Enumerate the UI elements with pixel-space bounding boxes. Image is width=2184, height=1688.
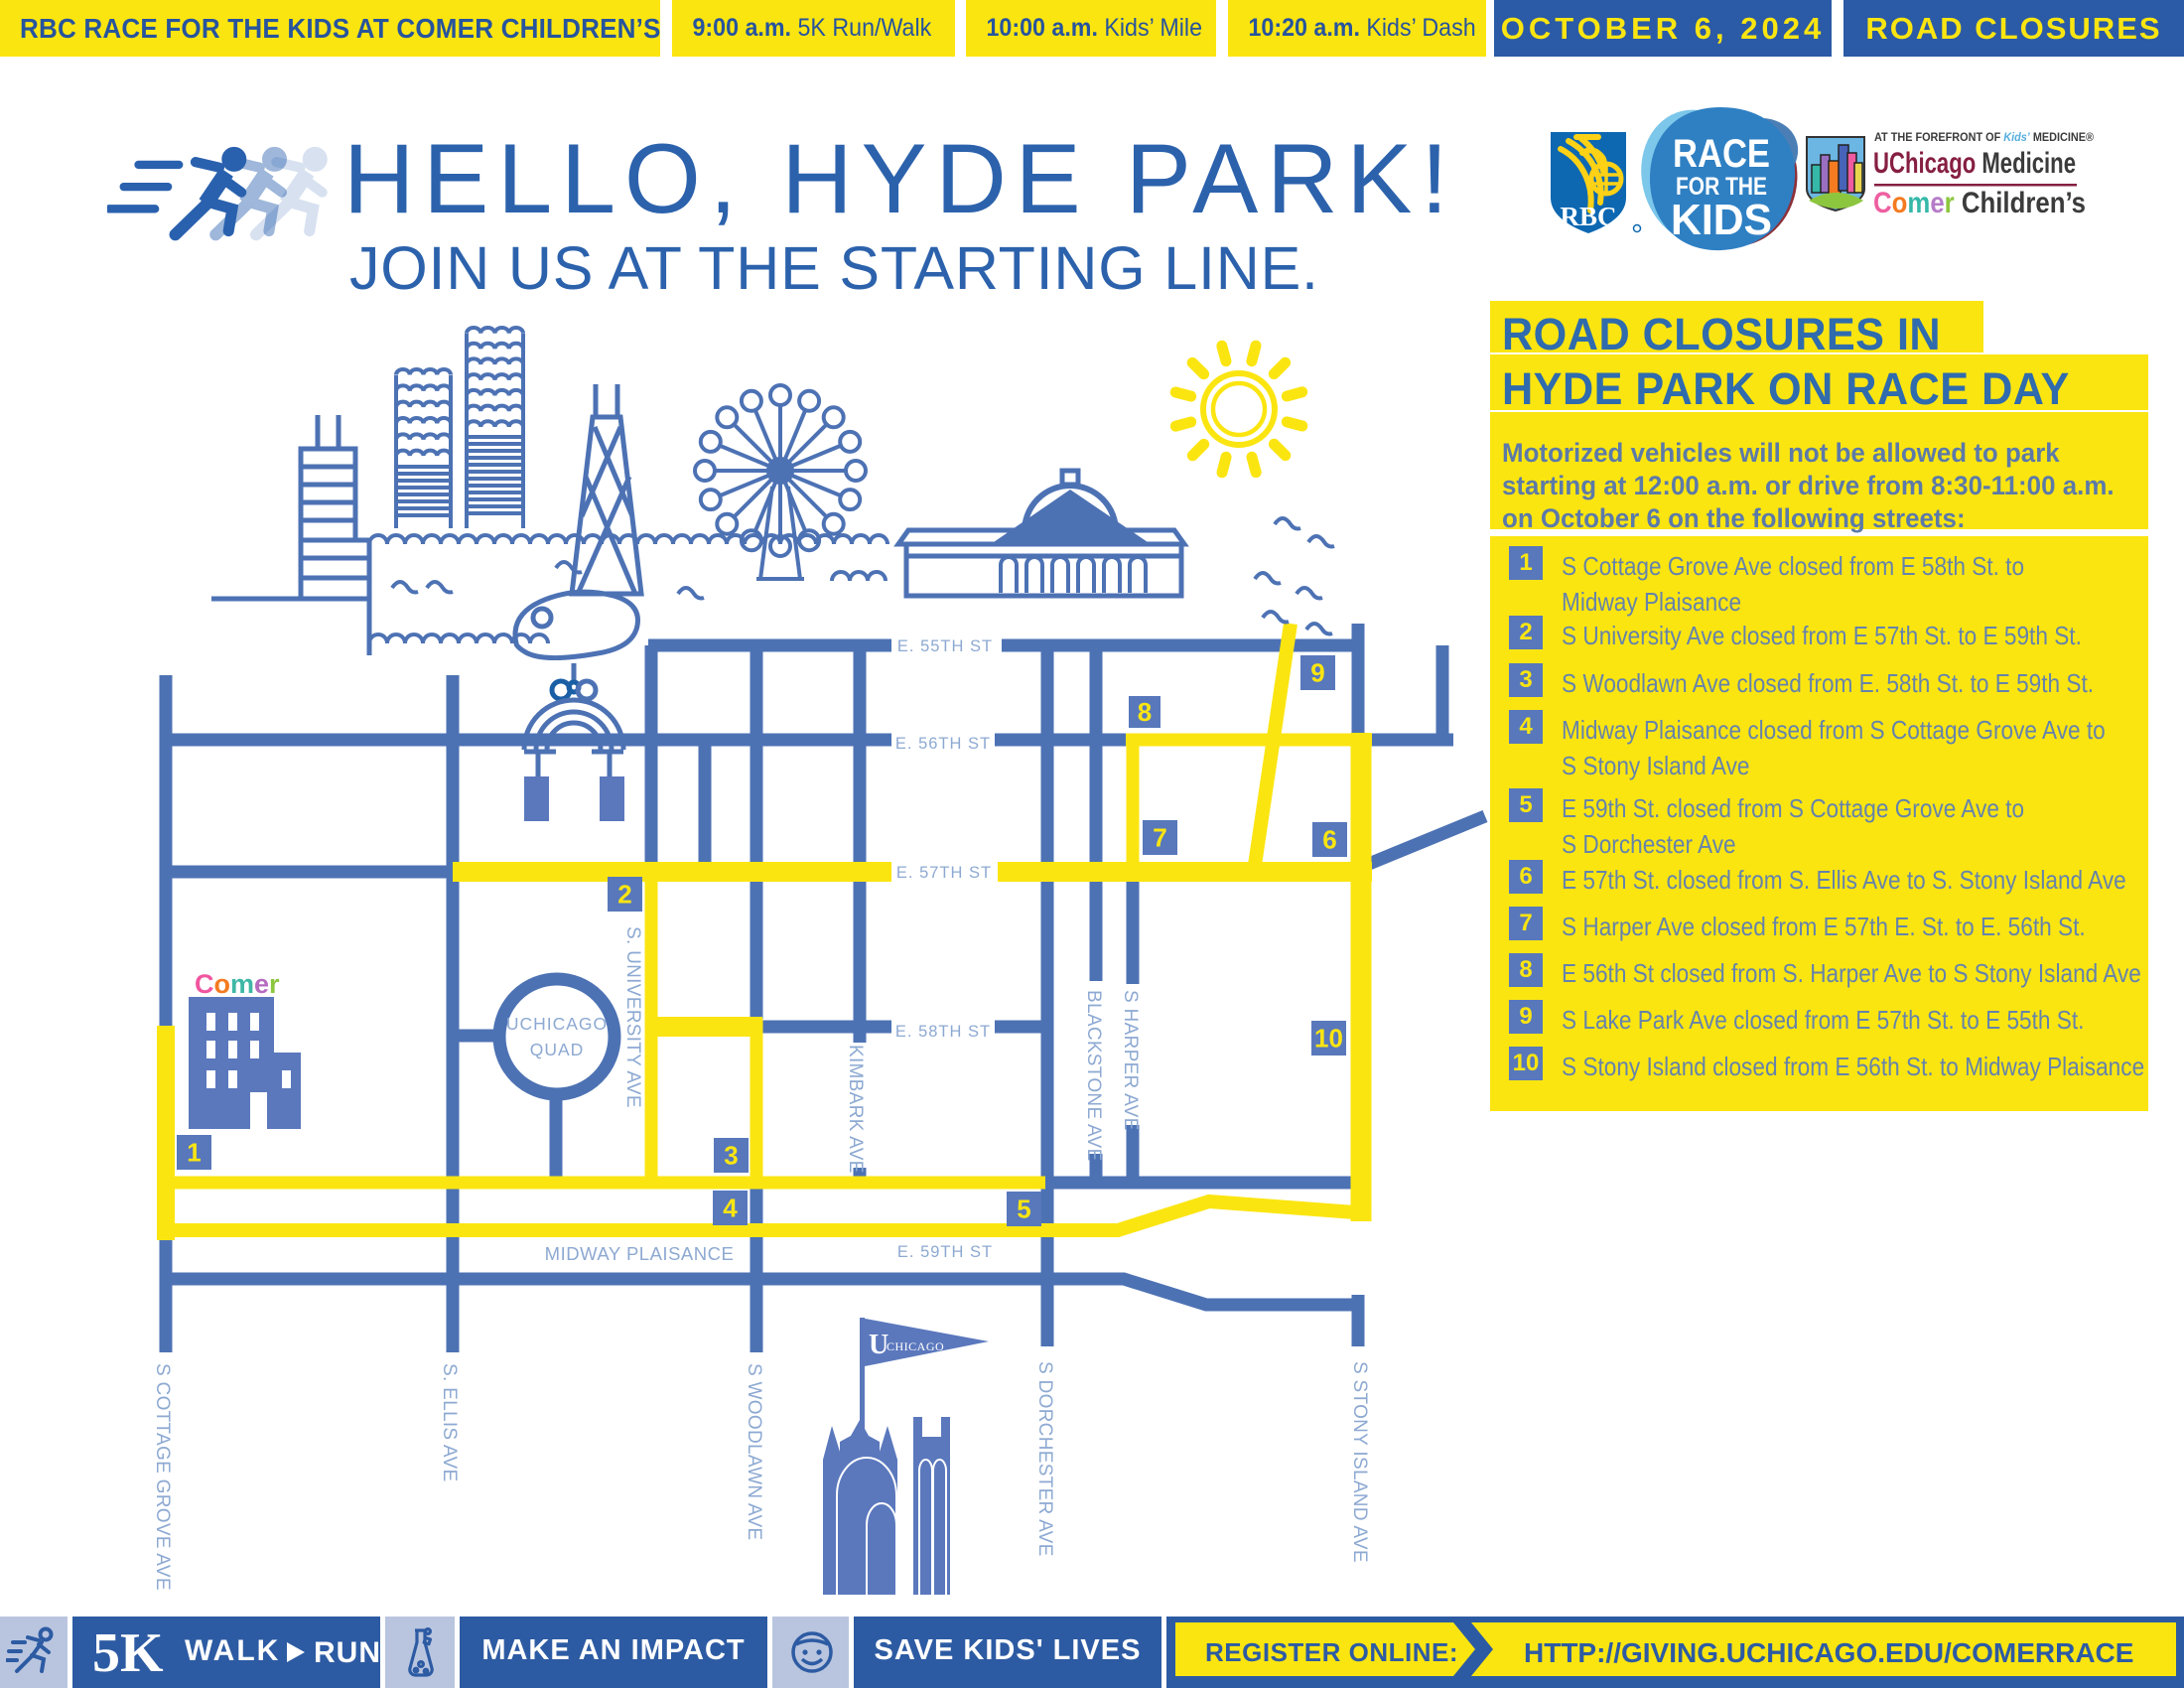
svg-text:3: 3 — [724, 1141, 738, 1171]
svg-text:6: 6 — [1322, 825, 1336, 855]
svg-text:S DORCHESTER AVE: S DORCHESTER AVE — [1034, 1361, 1055, 1557]
svg-text:S. UNIVERSITY AVE: S. UNIVERSITY AVE — [622, 926, 643, 1108]
svg-text:S HARPER AVE: S HARPER AVE — [1120, 990, 1141, 1131]
svg-text:S COTTAGE GROVE AVE: S COTTAGE GROVE AVE — [152, 1363, 173, 1591]
svg-text:S STONY ISLAND AVE: S STONY ISLAND AVE — [1349, 1361, 1370, 1563]
svg-text:8: 8 — [1138, 697, 1152, 727]
svg-text:BLACKSTONE AVE: BLACKSTONE AVE — [1083, 990, 1104, 1161]
svg-text:5: 5 — [1017, 1195, 1030, 1224]
svg-text:Comer: Comer — [195, 969, 280, 999]
svg-text:1: 1 — [187, 1138, 201, 1168]
svg-text:9: 9 — [1310, 658, 1324, 688]
svg-text:CHICAGO: CHICAGO — [887, 1339, 944, 1353]
svg-text:E. 55TH ST: E. 55TH ST — [897, 637, 993, 655]
svg-text:UCHICAGO: UCHICAGO — [506, 1014, 608, 1034]
svg-text:E. 59TH ST: E. 59TH ST — [897, 1243, 993, 1261]
svg-text:QUAD: QUAD — [530, 1040, 585, 1059]
svg-text:E. 56TH ST: E. 56TH ST — [895, 735, 991, 753]
svg-text:S WOODLAWN AVE: S WOODLAWN AVE — [744, 1363, 764, 1540]
svg-text:2: 2 — [617, 880, 631, 910]
svg-text:7: 7 — [1153, 823, 1166, 853]
svg-text:S. ELLIS AVE: S. ELLIS AVE — [439, 1363, 460, 1481]
svg-text:E. 58TH ST: E. 58TH ST — [895, 1023, 991, 1041]
svg-text:KIMBARK AVE: KIMBARK AVE — [845, 1045, 866, 1174]
svg-text:4: 4 — [723, 1194, 738, 1223]
svg-text:10: 10 — [1314, 1024, 1343, 1054]
svg-text:MIDWAY PLAISANCE: MIDWAY PLAISANCE — [545, 1243, 735, 1264]
svg-text:E. 57TH ST: E. 57TH ST — [896, 864, 992, 882]
